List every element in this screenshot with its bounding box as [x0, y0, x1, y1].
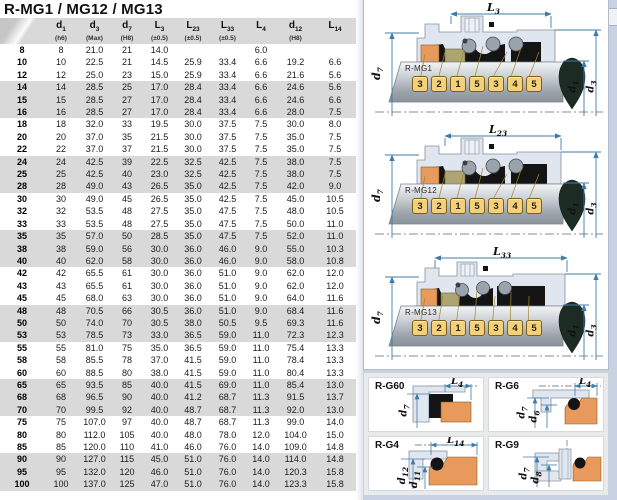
- value-cell: 36.0: [176, 305, 210, 317]
- value-cell: 48.0: [277, 205, 314, 217]
- value-cell: 9.0: [245, 305, 277, 317]
- value-cell: 68.0: [78, 292, 111, 304]
- value-cell: 35.0: [277, 131, 314, 143]
- value-cell: 9.0: [314, 180, 356, 192]
- value-cell: 28.4: [176, 106, 210, 118]
- value-cell: [176, 44, 210, 56]
- value-cell: 15.0: [314, 429, 356, 441]
- g60-dim-L4: L4: [451, 377, 463, 389]
- size-cell: 55: [0, 342, 44, 354]
- value-cell: 6.6: [314, 94, 356, 106]
- value-cell: 80: [44, 429, 78, 441]
- value-cell: 35: [44, 230, 78, 242]
- value-cell: 88.5: [78, 367, 111, 379]
- callout-tag: 2: [431, 198, 447, 214]
- table-row: 252542.54023.032.542.57.538.07.5: [0, 168, 356, 180]
- value-cell: 58: [111, 255, 143, 267]
- value-cell: 47.5: [210, 205, 245, 217]
- value-cell: 42.5: [78, 156, 111, 168]
- callout-tag: 4: [507, 198, 523, 214]
- value-cell: 6.6: [245, 56, 277, 68]
- value-cell: 6.6: [245, 106, 277, 118]
- size-cell: 32: [0, 205, 44, 217]
- value-cell: 60: [44, 367, 78, 379]
- size-cell: 90: [0, 453, 44, 465]
- value-cell: 75: [111, 342, 143, 354]
- value-cell: 10.5: [314, 193, 356, 205]
- value-cell: [314, 44, 356, 56]
- size-cell: 45: [0, 292, 44, 304]
- table-row: 101022.52114.525.933.46.619.26.6: [0, 56, 356, 68]
- table-row: 151528.52717.028.433.46.624.66.6: [0, 94, 356, 106]
- value-cell: 8: [44, 44, 78, 56]
- value-cell: 30.0: [143, 243, 176, 255]
- size-cell: 35: [0, 230, 44, 242]
- value-cell: 10: [44, 56, 78, 68]
- value-cell: 22.5: [78, 56, 111, 68]
- value-cell: 47.0: [143, 478, 176, 490]
- table-row: 181832.03319.530.037.57.530.08.0: [0, 118, 356, 130]
- value-cell: 38.0: [277, 156, 314, 168]
- value-cell: 51.0: [176, 453, 210, 465]
- table-row: 9090127.011545.051.076.014.0114.014.8: [0, 453, 356, 465]
- value-cell: 80.4: [277, 367, 314, 379]
- table-row: 656593.58540.041.569.011.085.413.0: [0, 379, 356, 391]
- value-cell: 74.0: [78, 317, 111, 329]
- mg1-dim-d3: d3: [586, 80, 599, 92]
- value-cell: 49.0: [78, 180, 111, 192]
- table-row: 222237.03721.530.037.57.535.07.5: [0, 143, 356, 155]
- seat-box-g60: R-G60 L4 d7: [368, 377, 484, 432]
- value-cell: 33: [44, 218, 78, 230]
- size-cell: 70: [0, 404, 44, 416]
- value-cell: 30.0: [143, 280, 176, 292]
- callout-tag: 4: [507, 320, 523, 336]
- col-header-L23: L23(±0.5): [176, 18, 210, 44]
- value-cell: 43: [44, 280, 78, 292]
- value-cell: 120.0: [78, 441, 111, 453]
- value-cell: 26.5: [143, 193, 176, 205]
- table-row: 141428.52517.028.433.46.624.65.6: [0, 81, 356, 93]
- table-row: 282849.04326.535.042.57.542.09.0: [0, 180, 356, 192]
- value-cell: 48.7: [176, 404, 210, 416]
- value-cell: 27.5: [143, 205, 176, 217]
- mg12-dim-L23: L23: [489, 123, 507, 138]
- value-cell: 7.5: [245, 143, 277, 155]
- col-header-L4: L4: [245, 18, 277, 44]
- table-row: 424265.56130.036.051.09.062.012.0: [0, 267, 356, 279]
- value-cell: 120.3: [277, 466, 314, 478]
- value-cell: 76.0: [210, 441, 245, 453]
- value-cell: 63: [111, 292, 143, 304]
- value-cell: 25.0: [78, 69, 111, 81]
- value-cell: 14.0: [245, 441, 277, 453]
- mg1-dim-L3: L3: [487, 1, 500, 16]
- value-cell: 76.0: [210, 478, 245, 490]
- value-cell: 6.6: [245, 94, 277, 106]
- callout-tag: 3: [412, 76, 428, 92]
- value-cell: 30.0: [143, 267, 176, 279]
- value-cell: 25.9: [176, 69, 210, 81]
- value-cell: 36.0: [176, 280, 210, 292]
- value-cell: 127.0: [78, 453, 111, 465]
- value-cell: 13.3: [314, 342, 356, 354]
- value-cell: 26.5: [143, 180, 176, 192]
- size-cell: 28: [0, 180, 44, 192]
- value-cell: 18: [44, 118, 78, 130]
- value-cell: 107.0: [78, 416, 111, 428]
- dimensions-table: d1(h6) d3(Max) d7(H8) L3(±0.5) L23(±0.5)…: [0, 18, 356, 491]
- value-cell: 9.0: [245, 243, 277, 255]
- value-cell: 37.0: [78, 131, 111, 143]
- value-cell: 30.5: [143, 305, 176, 317]
- value-cell: 69.0: [210, 379, 245, 391]
- value-cell: 41.5: [176, 367, 210, 379]
- value-cell: 14.8: [314, 453, 356, 465]
- value-cell: 40.0: [143, 391, 176, 403]
- size-cell: 48: [0, 305, 44, 317]
- value-cell: 50.0: [277, 218, 314, 230]
- value-cell: 62.0: [78, 255, 111, 267]
- value-cell: 14: [44, 81, 78, 93]
- value-cell: 65.5: [78, 267, 111, 279]
- value-cell: 11.0: [314, 230, 356, 242]
- size-cell: 75: [0, 416, 44, 428]
- value-cell: 43: [111, 180, 143, 192]
- value-cell: 35.0: [176, 230, 210, 242]
- value-cell: 11.6: [314, 317, 356, 329]
- value-cell: 24.6: [277, 81, 314, 93]
- value-cell: 115: [111, 453, 143, 465]
- value-cell: 7.5: [314, 156, 356, 168]
- diagram-mg1: R-MG1 3215345 L3 d7 d1 d3: [365, 4, 607, 122]
- value-cell: 21: [111, 56, 143, 68]
- value-cell: 53.5: [78, 205, 111, 217]
- value-cell: 114.0: [277, 453, 314, 465]
- seat-variants-panel: R-G60 L4 d7 R-G6 L4 d7 d6: [363, 372, 609, 496]
- mg1-dim-d7: d7: [370, 67, 385, 80]
- value-cell: 36.0: [176, 255, 210, 267]
- value-cell: 37.5: [210, 118, 245, 130]
- value-cell: 100: [44, 478, 78, 490]
- value-cell: 23.0: [143, 168, 176, 180]
- value-cell: 93.5: [78, 379, 111, 391]
- callout-tag: 1: [450, 76, 466, 92]
- table-header: d1(h6) d3(Max) d7(H8) L3(±0.5) L23(±0.5)…: [0, 18, 356, 44]
- value-cell: 69.3: [277, 317, 314, 329]
- value-cell: 73: [111, 329, 143, 341]
- value-cell: 35.0: [277, 143, 314, 155]
- value-cell: 40.0: [143, 379, 176, 391]
- value-cell: 45.0: [277, 193, 314, 205]
- value-cell: 37.5: [210, 143, 245, 155]
- value-cell: 28: [44, 180, 78, 192]
- value-cell: 28.0: [277, 106, 314, 118]
- value-cell: 12.0: [314, 267, 356, 279]
- g6-dim-L4: L4: [579, 377, 591, 389]
- value-cell: 90: [111, 391, 143, 403]
- value-cell: 50.5: [210, 317, 245, 329]
- seal-diagrams-panel: R-MG1 3215345 L3 d7 d1 d3: [363, 0, 609, 370]
- value-cell: 64.0: [277, 292, 314, 304]
- value-cell: 59.0: [210, 329, 245, 341]
- value-cell: 11.6: [314, 305, 356, 317]
- col-header-L14: L14: [314, 18, 356, 44]
- value-cell: 30.0: [277, 118, 314, 130]
- value-cell: 38.0: [277, 168, 314, 180]
- callout-tag: 5: [526, 76, 542, 92]
- table-row: 242442.53922.532.542.57.538.07.5: [0, 156, 356, 168]
- callout-tag: 5: [526, 320, 542, 336]
- value-cell: 33: [111, 118, 143, 130]
- value-cell: 40.0: [143, 429, 176, 441]
- callout-tag: 4: [507, 76, 523, 92]
- value-cell: 55.0: [277, 243, 314, 255]
- value-cell: 45: [44, 292, 78, 304]
- size-cell: 14: [0, 81, 44, 93]
- value-cell: 99.5: [78, 404, 111, 416]
- size-cell: 15: [0, 94, 44, 106]
- value-cell: 11.3: [245, 416, 277, 428]
- value-cell: 10.3: [314, 243, 356, 255]
- value-cell: 46.0: [210, 255, 245, 267]
- value-cell: 9.0: [245, 292, 277, 304]
- value-cell: 35.0: [176, 193, 210, 205]
- table-row: 535378.57333.036.559.011.072.312.3: [0, 329, 356, 341]
- callout-tag: 2: [431, 320, 447, 336]
- mg13-dim-d3: d3: [586, 324, 599, 336]
- value-cell: 15: [44, 94, 78, 106]
- table-row: 9595132.012046.051.076.014.0120.315.8: [0, 466, 356, 478]
- table-row: 202037.03521.530.037.57.535.07.5: [0, 131, 356, 143]
- value-cell: 78.0: [210, 429, 245, 441]
- value-cell: 33.4: [210, 106, 245, 118]
- value-cell: 104.0: [277, 429, 314, 441]
- value-cell: 32: [44, 205, 78, 217]
- value-cell: 58.0: [277, 255, 314, 267]
- value-cell: 30.0: [176, 118, 210, 130]
- value-cell: 35: [111, 131, 143, 143]
- value-cell: 24: [44, 156, 78, 168]
- value-cell: 51.0: [210, 267, 245, 279]
- table-row: 121225.02315.025.933.46.621.65.6: [0, 69, 356, 81]
- table-row: 505074.07030.538.050.59.569.311.6: [0, 317, 356, 329]
- value-cell: 17.0: [143, 94, 176, 106]
- value-cell: 11.6: [314, 292, 356, 304]
- diagram-mg13: R-MG13 3215345 L33 d7 d1 d3: [365, 248, 607, 366]
- value-cell: 62.0: [277, 267, 314, 279]
- col-header-d3: d3(Max): [78, 18, 111, 44]
- value-cell: 96.5: [78, 391, 111, 403]
- value-cell: 15.0: [143, 69, 176, 81]
- value-cell: 46.0: [143, 466, 176, 478]
- callout-tag: 3: [488, 320, 504, 336]
- value-cell: 11.0: [245, 367, 277, 379]
- value-cell: 11.0: [245, 379, 277, 391]
- value-cell: 36.0: [176, 292, 210, 304]
- size-cell: 40: [0, 255, 44, 267]
- value-cell: 9.5: [245, 317, 277, 329]
- callout-tags: 3215345: [412, 320, 542, 336]
- value-cell: 36.0: [176, 267, 210, 279]
- callout-tag: 3: [412, 198, 428, 214]
- callout-tag: 1: [450, 320, 466, 336]
- size-cell: 58: [0, 354, 44, 366]
- table-row: 8821.02114.06.0: [0, 44, 356, 56]
- size-cell: 85: [0, 441, 44, 453]
- size-cell: 12: [0, 69, 44, 81]
- value-cell: 13.0: [314, 379, 356, 391]
- value-cell: 42.0: [277, 180, 314, 192]
- value-cell: 27.5: [143, 218, 176, 230]
- value-cell: 33.0: [143, 329, 176, 341]
- value-cell: 30.0: [176, 143, 210, 155]
- value-cell: 59.0: [78, 243, 111, 255]
- value-cell: 36.5: [176, 342, 210, 354]
- value-cell: 48.7: [176, 416, 210, 428]
- value-cell: 28.5: [78, 106, 111, 118]
- value-cell: 20: [44, 131, 78, 143]
- g4-dim-d11: d11: [409, 471, 422, 488]
- table-row: 353557.05028.535.047.57.552.011.0: [0, 230, 356, 242]
- value-cell: 7.5: [245, 131, 277, 143]
- mg13-label: R-MG13: [405, 308, 437, 317]
- callout-tag: 5: [469, 198, 485, 214]
- value-cell: 25: [111, 81, 143, 93]
- size-cell: 53: [0, 329, 44, 341]
- value-cell: 7.5: [314, 168, 356, 180]
- mg1-cross-section-drawing: [365, 4, 607, 122]
- value-cell: 68: [44, 391, 78, 403]
- value-cell: 76.0: [210, 466, 245, 478]
- value-cell: 85: [111, 379, 143, 391]
- value-cell: 70: [111, 317, 143, 329]
- table-row: 585885.57837.041.559.011.078.413.3: [0, 354, 356, 366]
- value-cell: 11.3: [245, 391, 277, 403]
- table-row: 404062.05830.036.046.09.058.010.8: [0, 255, 356, 267]
- value-cell: 25: [44, 168, 78, 180]
- value-cell: 6.6: [245, 69, 277, 81]
- value-cell: 40: [44, 255, 78, 267]
- value-cell: 85: [44, 441, 78, 453]
- value-cell: 32.5: [176, 156, 210, 168]
- value-cell: 9.0: [245, 280, 277, 292]
- value-cell: 37.0: [78, 143, 111, 155]
- value-cell: 49.0: [78, 193, 111, 205]
- value-cell: 55: [44, 342, 78, 354]
- value-cell: 51.0: [210, 292, 245, 304]
- value-cell: 9.0: [245, 255, 277, 267]
- value-cell: 14.0: [143, 44, 176, 56]
- value-cell: 28.4: [176, 81, 210, 93]
- value-cell: 40.0: [143, 404, 176, 416]
- value-cell: 35.0: [176, 205, 210, 217]
- callout-tag: 3: [488, 76, 504, 92]
- value-cell: 57.0: [78, 230, 111, 242]
- value-cell: 39: [111, 156, 143, 168]
- value-cell: 46.0: [176, 441, 210, 453]
- mg12-dim-d3: d3: [586, 202, 599, 214]
- value-cell: 45.0: [143, 453, 176, 465]
- value-cell: 14.0: [245, 466, 277, 478]
- diagram-mg12: R-MG12 3215345 L23 d7 d1 d3: [365, 126, 607, 244]
- mg12-cross-section-drawing: [365, 126, 607, 244]
- size-cell: 33: [0, 218, 44, 230]
- value-cell: 24.6: [277, 94, 314, 106]
- value-cell: 25.9: [176, 56, 210, 68]
- value-cell: 68.7: [210, 404, 245, 416]
- value-cell: 7.5: [245, 205, 277, 217]
- callout-tag: 5: [469, 320, 485, 336]
- value-cell: 68.4: [277, 305, 314, 317]
- size-cell: 8: [0, 44, 44, 56]
- value-cell: 17.0: [143, 81, 176, 93]
- g9-label: R-G9: [495, 440, 519, 451]
- value-cell: 19.5: [143, 118, 176, 130]
- value-cell: 51.0: [210, 305, 245, 317]
- value-cell: 105: [111, 429, 143, 441]
- value-cell: 70: [44, 404, 78, 416]
- value-cell: 35.0: [176, 180, 210, 192]
- value-cell: 32.0: [78, 118, 111, 130]
- value-cell: 48: [111, 218, 143, 230]
- callout-tag: 3: [412, 320, 428, 336]
- value-cell: 59.0: [210, 354, 245, 366]
- value-cell: 38: [44, 243, 78, 255]
- table-row: 333353.54827.535.047.57.550.011.0: [0, 218, 356, 230]
- value-cell: 38.0: [143, 367, 176, 379]
- value-cell: [210, 44, 245, 56]
- value-cell: 21.6: [277, 69, 314, 81]
- table-body: 8821.02114.06.0101022.52114.525.933.46.6…: [0, 44, 356, 491]
- value-cell: 14.0: [314, 416, 356, 428]
- value-cell: 51.0: [210, 280, 245, 292]
- value-cell: 123.3: [277, 478, 314, 490]
- seat-box-g6: R-G6 L4 d7 d6: [488, 377, 604, 432]
- value-cell: 91.5: [277, 391, 314, 403]
- value-cell: 38.0: [176, 317, 210, 329]
- value-cell: 11.0: [314, 218, 356, 230]
- value-cell: 42: [44, 267, 78, 279]
- size-cell: 38: [0, 243, 44, 255]
- callout-tags: 3215345: [412, 198, 542, 214]
- value-cell: 137.0: [78, 478, 111, 490]
- value-cell: 13.0: [314, 404, 356, 416]
- value-cell: 37: [111, 143, 143, 155]
- value-cell: 125: [111, 478, 143, 490]
- value-cell: 59.0: [210, 342, 245, 354]
- value-cell: 53: [44, 329, 78, 341]
- value-cell: 19.2: [277, 56, 314, 68]
- value-cell: 36.0: [176, 243, 210, 255]
- value-cell: 6.6: [314, 56, 356, 68]
- value-cell: 11.3: [245, 404, 277, 416]
- g4-label: R-G4: [375, 440, 399, 451]
- page-title: R-MG1 / MG12 / MG13: [4, 0, 163, 18]
- value-cell: 37.0: [143, 354, 176, 366]
- value-cell: 92.0: [277, 404, 314, 416]
- g4-dim-L14: L14: [447, 436, 464, 448]
- size-cell: 20: [0, 131, 44, 143]
- value-cell: 90: [44, 453, 78, 465]
- value-cell: 11.0: [245, 354, 277, 366]
- value-cell: 50: [111, 230, 143, 242]
- value-cell: 7.5: [314, 143, 356, 155]
- size-cell: 68: [0, 391, 44, 403]
- value-cell: 22: [44, 143, 78, 155]
- value-cell: 47.5: [210, 230, 245, 242]
- g6-label: R-G6: [495, 381, 519, 392]
